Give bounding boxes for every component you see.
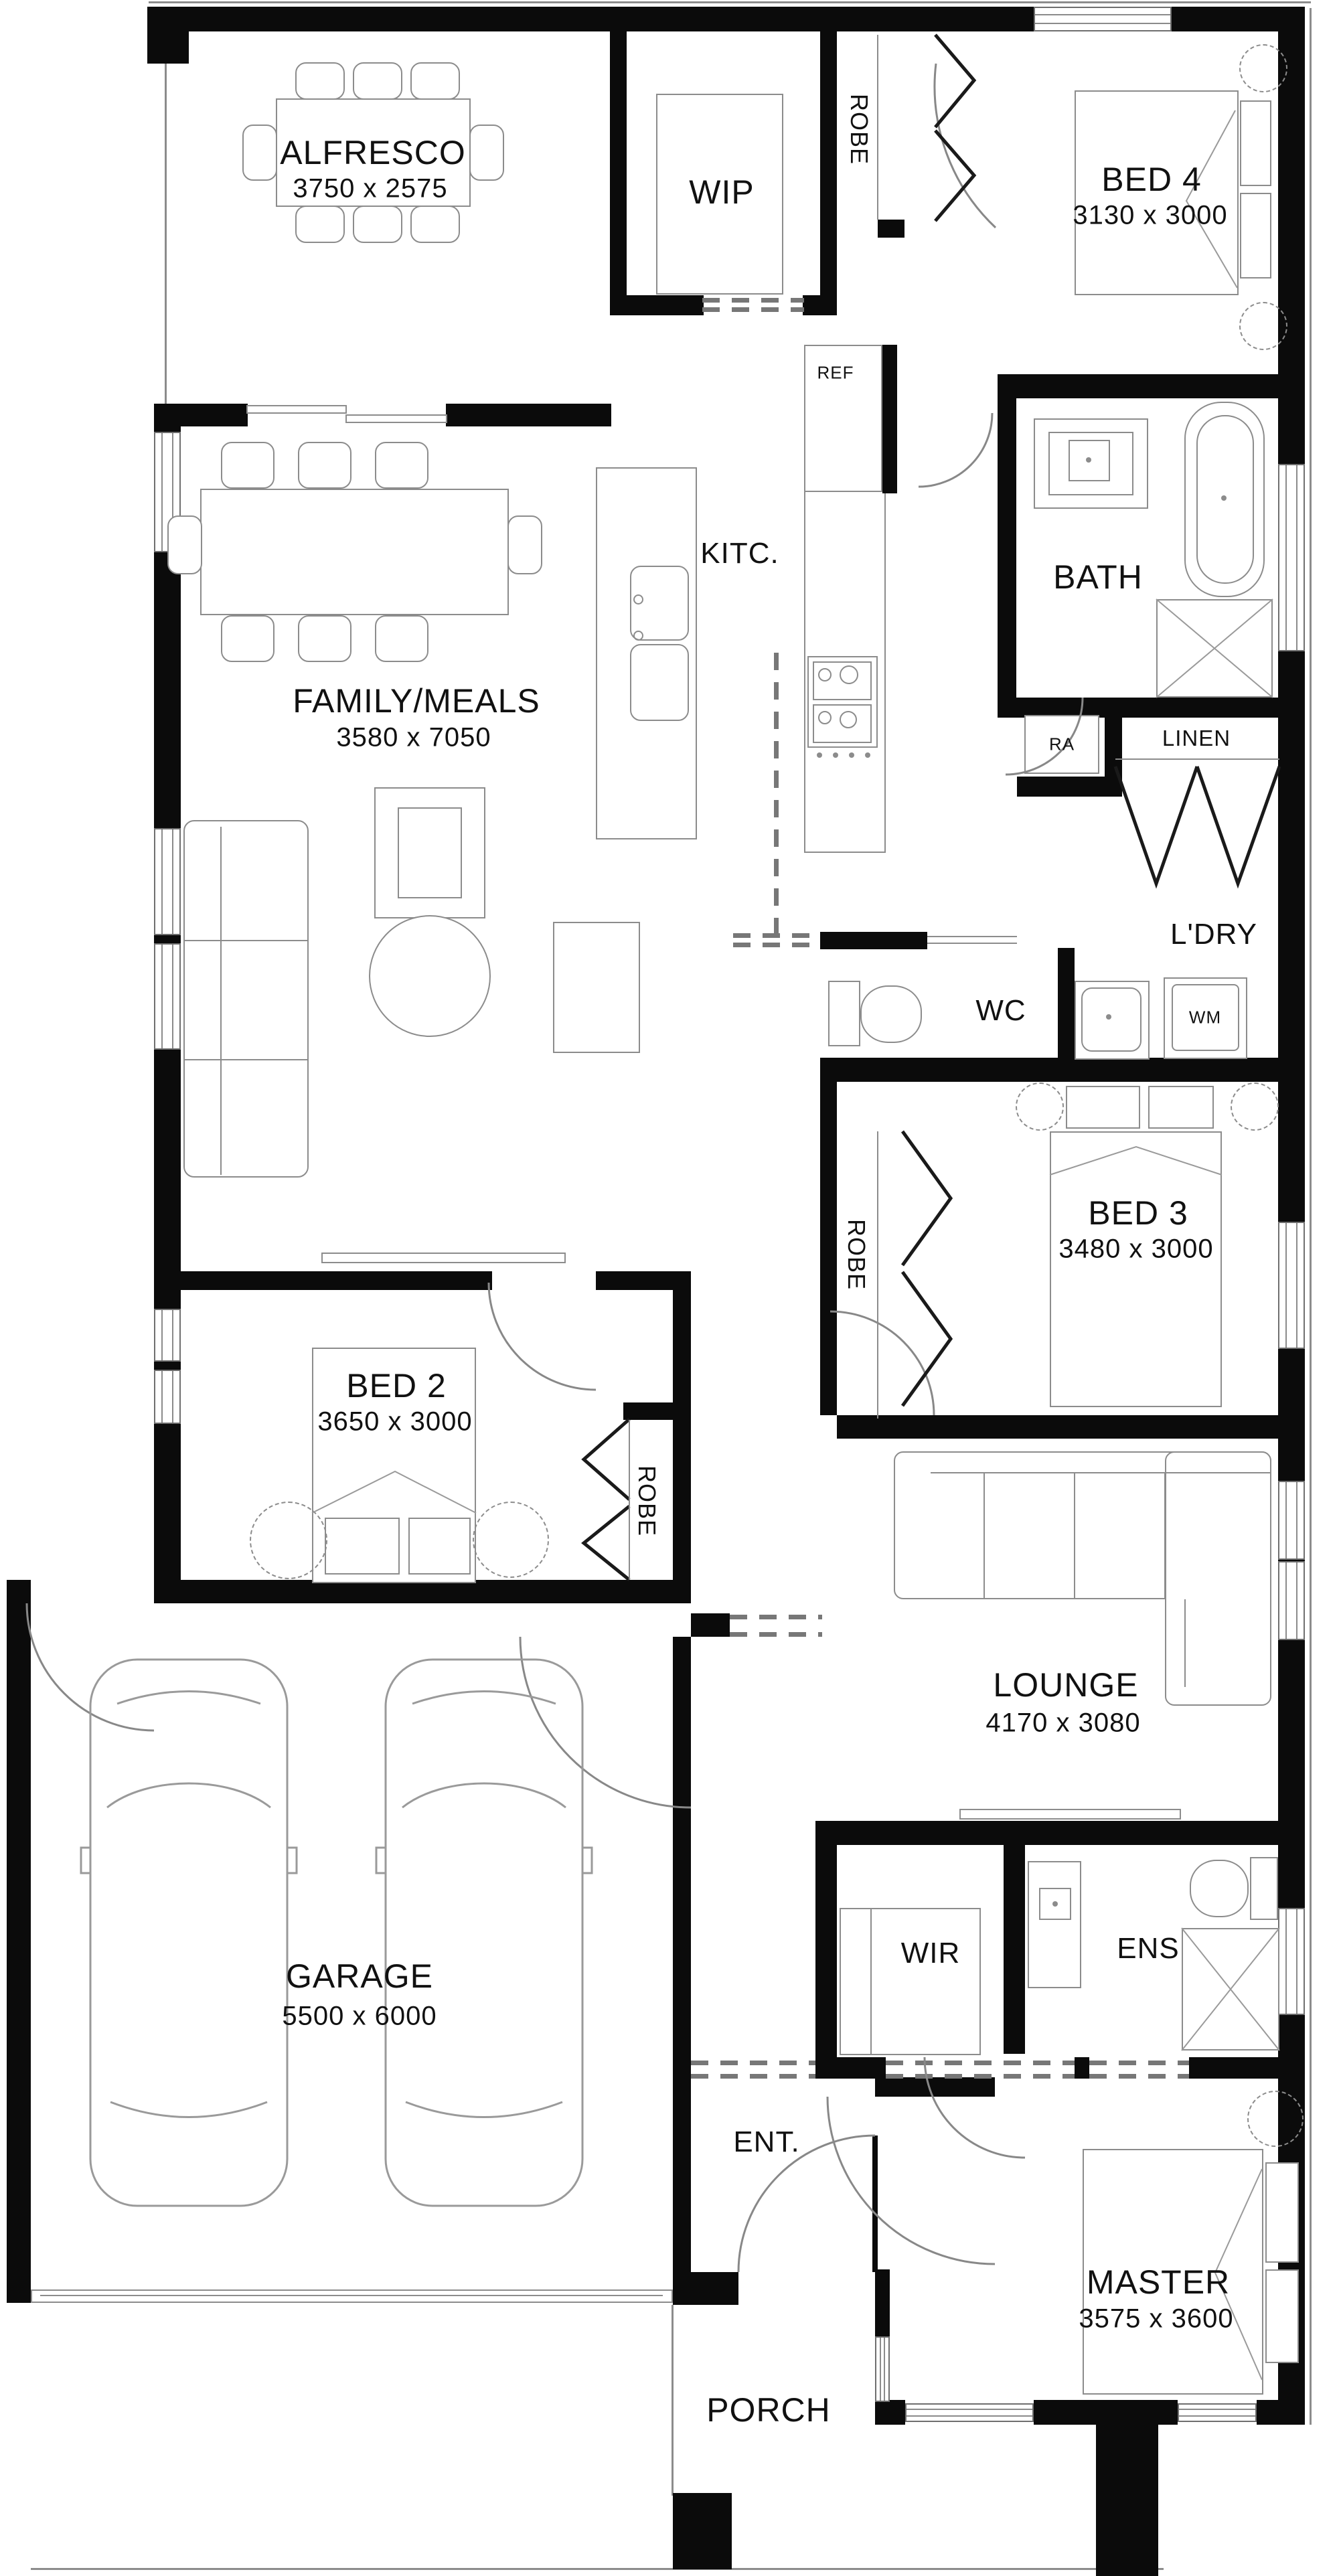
room-label-porch: PORCH [706,2391,831,2429]
toilet-cistern [1250,1857,1278,1920]
window-family-west-2 [154,828,181,935]
wall-ent-east [875,2269,890,2338]
room-label-laundry: L'DRY [1170,918,1257,951]
wall-master-bottom-1 [875,2400,905,2425]
room-label-kitchen: KITC. [700,537,779,570]
bed [1050,1131,1222,1407]
window-family-west-3 [154,943,181,1050]
bulkhead-suite-dash-1 [691,2074,815,2079]
bench-line [884,493,886,853]
chair [242,125,277,181]
chair [410,62,460,100]
wall-wc-laundry-divider [1058,948,1075,1060]
wall-corner-block [147,7,189,64]
eave-line-right [1310,8,1312,2425]
room-dims-master: 3575 x 3600 [1079,2304,1233,2334]
shower [1182,1928,1279,2050]
pillow [1265,2162,1299,2263]
bedside-table [1247,2091,1304,2147]
toilet-cistern [828,981,860,1046]
shelf-line [927,936,1017,937]
window-bed2-west-1 [154,1309,181,1362]
chair [507,515,542,574]
bulkhead-suite-dash-1 [691,2061,815,2065]
room-label-garage: GARAGE [286,1957,433,1996]
window-lounge-east-2 [1278,1561,1305,1640]
wall-suite-bottom-left [815,2057,886,2079]
car-outlines [81,1660,592,2206]
pillow [1240,193,1271,278]
room-label-bed4: BED 4 [1101,160,1202,199]
room-label-robe-bed2: ROBE [633,1465,661,1536]
wall-lounge-top [837,1415,1305,1439]
room-label-master: MASTER [1087,2263,1230,2302]
basin-drain [1052,1901,1058,1907]
door-arc-bed4 [935,64,996,228]
wall-right [1278,7,1305,2425]
chair [295,206,345,243]
car-bonnet [412,1692,556,1704]
armchair [553,922,640,1053]
wall-garage-bottom-corner [7,2272,31,2303]
chair [410,206,460,243]
wall-wc-row-bottom [820,1058,1305,1082]
chair [221,615,274,662]
pier-south [1096,2400,1158,2576]
wall-suite-bottom-right [1189,2057,1279,2079]
wall-robe4-stub [878,220,904,238]
room-label-wir: WIR [901,1937,961,1970]
door-arc-wir [925,2057,1025,2158]
bench-line [804,852,886,853]
wall-robe3-left [820,1082,837,1415]
room-dims-family: 3580 x 7050 [336,723,491,753]
garage-door-line [40,2295,663,2296]
opening-hall-wc-dash [733,943,819,947]
wall-bed2-bottom [154,1580,691,1603]
chair [353,62,402,100]
room-label-alfresco: ALFRESCO [280,133,466,172]
pillow [1148,1086,1214,1129]
porch-pillar [673,2493,732,2569]
wall-fridge-side [882,345,897,493]
burner [840,665,858,684]
wall-wip-bottom-left [610,295,704,315]
chair [295,62,345,100]
window-bed4-north [1034,7,1172,31]
dining-table [200,489,509,615]
wall-ent-stub [691,1613,730,1637]
wall-suite-bottom-mid [1075,2057,1089,2079]
bifold-robe-bed3 [902,1131,951,1406]
sliding-door-panel [345,414,447,423]
room-dims-lounge: 4170 x 3080 [986,1708,1140,1739]
room-label-linen: LINEN [1162,726,1231,751]
car [90,1660,287,2206]
bulkhead-suite-dash-2 [886,2061,1075,2065]
bathtub-drain [1221,495,1227,501]
wall-alfresco-bottom-left [154,404,248,426]
pillow [1265,2269,1299,2363]
pillow [1066,1086,1140,1129]
burner [818,711,832,724]
alfresco-edge-line [165,61,167,405]
chair [298,615,351,662]
window-bath-east [1278,464,1305,651]
wall-garage-left [7,1580,31,2303]
window-master-south-2 [1178,2403,1257,2422]
wall-ent-south [673,2272,738,2305]
wall-robe2-stub [623,1402,673,1420]
car-bonnet [117,1692,260,1704]
door-arc-garage-side [27,1603,154,1730]
lounge-chaise [1165,1451,1271,1706]
bedside-table [473,1502,549,1578]
car [386,1660,582,2206]
room-label-lounge: LOUNGE [993,1666,1138,1704]
bedside-table [1239,302,1287,350]
room-label-family: FAMILY/MEALS [293,681,540,720]
car-mirror [376,1848,386,1873]
room-dims-garage: 5500 x 6000 [282,2002,437,2032]
knob [849,752,854,758]
bifold-robe-bed4 [935,35,974,221]
wall-master-bottom-2 [1034,2400,1096,2425]
wall-bed4-bath [998,374,1305,398]
window-lounge-east-1 [1278,1481,1305,1560]
wall-wip-left [610,31,627,312]
bifold-linen [1115,767,1279,884]
bench-line [804,492,805,853]
knob [865,752,870,758]
vanity [1028,1861,1081,1988]
room-label-wc: WC [975,994,1026,1028]
room-label-bath: BATH [1053,558,1143,596]
toilet-bowl [860,985,922,1043]
opening-hall-wc-dash [733,933,819,938]
burner [840,711,857,728]
door-arc-garage-entry [520,1637,691,1807]
car-mirror [287,1848,297,1873]
room-dims-bed3: 3480 x 3000 [1058,1234,1213,1265]
sofa [183,820,309,1178]
chair [375,442,428,489]
wall-bed2-top-left [175,1271,492,1290]
eave-line-top [149,1,1311,3]
door-arc-kitchen-hall [919,413,992,487]
wardrobe-shelf-line [870,1909,872,2054]
wall-master-bottom-3 [1158,2400,1178,2425]
wall-master-bottom-4 [1257,2400,1305,2425]
trough-drain [1106,1014,1111,1020]
sliding-door-panel [246,405,347,414]
pillow [1240,100,1271,186]
wall-wc-top [820,932,927,949]
window-bed3-east [1278,1222,1305,1349]
wall-wip-bottom-right [803,295,837,315]
chair [167,515,202,574]
room-label-ens: ENS [1117,1932,1179,1965]
tap [633,594,643,605]
door-arc-master [828,2097,995,2264]
burner [818,668,832,681]
pillow [408,1518,471,1575]
window-ens-east [1278,1908,1305,2015]
car-mirror [582,1848,592,1873]
car-windshield [107,1783,270,1807]
room-label-entry: ENT. [733,2125,799,2159]
wardrobe-shelf [840,1908,981,2055]
room-label-bed2: BED 2 [346,1366,447,1405]
label-fridge: REF [817,363,854,384]
chair [469,125,504,181]
label-return-air: RA [1049,734,1075,755]
chair [375,615,428,662]
room-label-robe-bed3: ROBE [842,1219,870,1290]
bulkhead-suite-dash-3 [1089,2061,1189,2065]
tv-cabinet-inner [398,807,462,898]
room-dims-alfresco: 3750 x 2575 [293,174,447,204]
laundry-trough-inner [1081,987,1141,1052]
shower [1156,599,1273,698]
linen-shelf-line [1115,758,1279,760]
wall-under-ra [1017,777,1115,797]
bedside-table [1016,1082,1064,1131]
room-label-wip: WIP [689,173,754,212]
toilet-bowl [1190,1860,1249,1917]
chair [221,442,274,489]
car-mirror [81,1848,90,1873]
chair [298,442,351,489]
room-label-bed3: BED 3 [1088,1194,1188,1232]
car-rear-window [110,2102,267,2117]
bedside-table [1231,1082,1279,1131]
bulkhead-suite-dash-2 [886,2074,1075,2079]
knob [833,752,838,758]
room-label-robe-bed4: ROBE [845,94,873,165]
knob [817,752,822,758]
basin-drain [1086,457,1091,463]
wall-master-north [875,2077,995,2097]
wall-bath-left [998,398,1016,698]
wall-bed2-right [673,1271,691,1603]
car-windshield [402,1783,566,1807]
porch-edge-line [672,2305,674,2496]
wall-wir-left [815,1845,837,2057]
room-dims-bed2: 3650 x 3000 [317,1407,472,1437]
window-bed2-west-2 [154,1370,181,1424]
room-dims-bed4: 3130 x 3000 [1073,201,1227,231]
bedside-table [1239,44,1287,92]
opening-hall-lounge-dash [730,1632,822,1637]
tv-on-wall [321,1253,566,1263]
bifold-robe-bed2 [584,1419,629,1580]
eave-line-bottom [31,2568,1164,2570]
wall-suite-top [815,1821,1305,1845]
wall-garage-right [673,1637,691,2272]
tap [633,631,643,641]
car-rear-window [406,2102,562,2117]
garage-door [31,2289,673,2303]
wall-wip-right [820,31,837,312]
wall-wir-ens-divider [1004,1845,1025,2054]
shelf-line [927,943,1017,944]
opening-wip-dash [702,298,804,303]
label-washing-machine: WM [1189,1008,1221,1028]
wall-alfresco-bottom-right [446,404,611,426]
pillow [325,1518,400,1575]
floor-plan: ALFRESCO 3750 x 2575 WIP ROBE BED 4 3130… [0,0,1339,2576]
front-door-leaf [872,2136,878,2272]
door-arc-bed2 [489,1283,596,1390]
window-master-south-1 [905,2403,1034,2422]
window-porch-east [875,2336,890,2402]
round-ottoman [369,915,491,1037]
chair [353,206,402,243]
bulkhead-suite-dash-3 [1089,2074,1189,2079]
bulkhead-kitchen-dash [774,653,779,934]
tv-on-wall [959,1809,1181,1820]
bedside-table [250,1502,327,1579]
sink-bowl [630,644,689,721]
door-arc-bed3 [830,1311,934,1415]
opening-hall-lounge-dash [730,1615,822,1619]
opening-wip-dash [702,307,804,312]
